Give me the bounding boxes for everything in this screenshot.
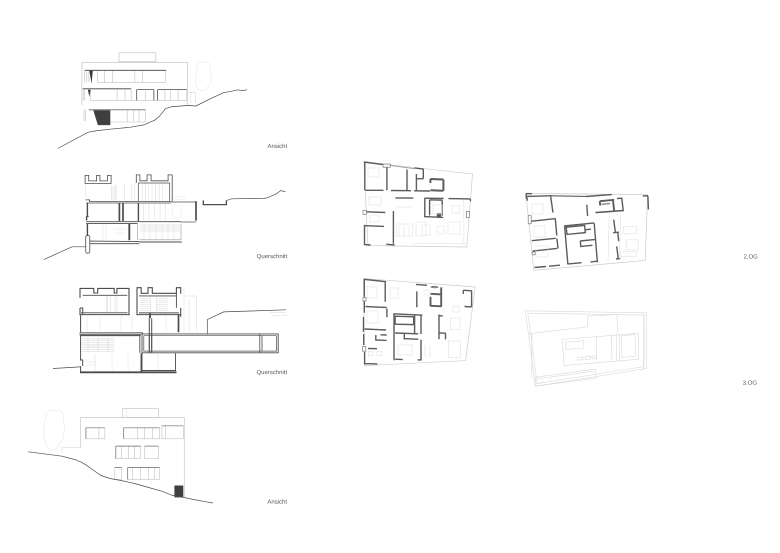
svg-text:2.OG: 2.OG	[743, 254, 758, 261]
svg-text:Querschnitt: Querschnitt	[257, 253, 288, 260]
svg-text:Querschnitt: Querschnitt	[256, 369, 287, 376]
svg-text:Ansicht: Ansicht	[267, 143, 287, 150]
svg-text:3.OG: 3.OG	[743, 380, 758, 387]
svg-text:Ansicht: Ansicht	[267, 499, 287, 506]
